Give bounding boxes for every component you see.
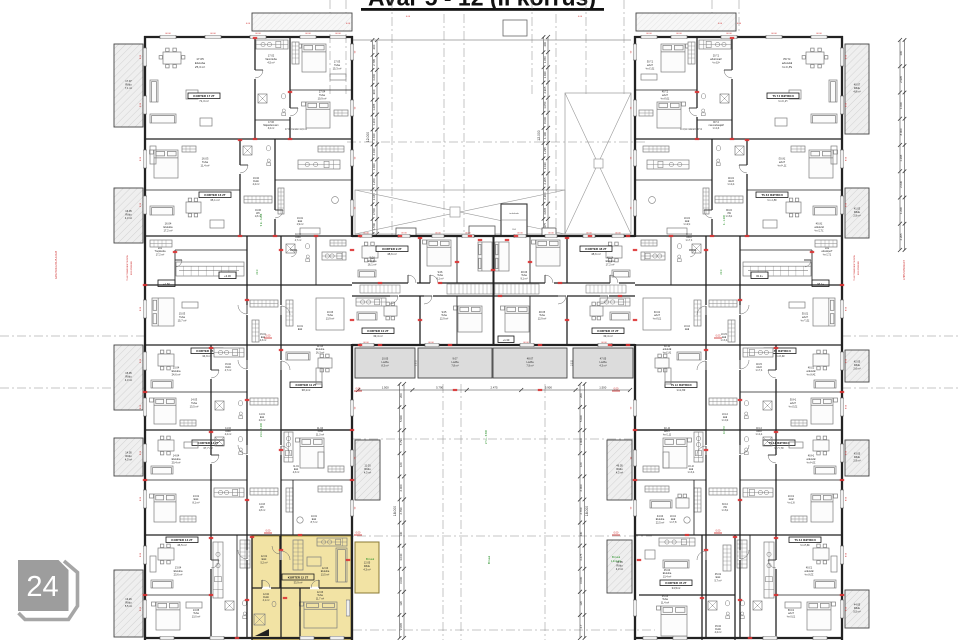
svg-text:12,9 m²: 12,9 m² [538, 317, 547, 320]
svg-text:10.01: 10.01 [683, 326, 689, 328]
svg-text:3.200: 3.200 [372, 73, 376, 80]
svg-text:11,3 m²: 11,3 m² [316, 433, 324, 436]
svg-text:24: 24 [26, 571, 58, 603]
svg-text:14.01: 14.01 [259, 414, 265, 416]
svg-text:9,1 m²: 9,1 m² [520, 277, 527, 280]
svg-text:KORTER 45 2T: KORTER 45 2T [665, 581, 686, 585]
svg-text:8,7 m²: 8,7 m² [311, 521, 318, 524]
svg-text:17,2 m²: 17,2 m² [163, 229, 172, 233]
svg-text:15.01: 15.01 [720, 334, 726, 336]
svg-text:8,3 m²: 8,3 m² [381, 363, 388, 367]
svg-text:13,9 m²: 13,9 m² [653, 317, 662, 320]
svg-text:00 00: 00 00 [601, 342, 607, 344]
svg-text:3.030: 3.030 [399, 553, 403, 560]
svg-text:1.295: 1.295 [543, 147, 547, 154]
svg-text:6.000: 6.000 [579, 484, 583, 491]
svg-text:KORTER 11 2T: KORTER 11 2T [295, 383, 316, 387]
svg-text:00 00: 00 00 [816, 33, 822, 35]
svg-text:46,5 m²: 46,5 m² [177, 543, 187, 547]
svg-text:16.06: 16.06 [725, 210, 731, 212]
svg-text:KORTER 17 2T: KORTER 17 2T [193, 94, 214, 98]
svg-text:1,8 m²: 1,8 m² [722, 509, 729, 512]
svg-text:11.01: 11.01 [687, 466, 693, 468]
svg-text:13,9 m²: 13,9 m² [326, 317, 335, 320]
svg-text:66 tuuk: 66 tuuk [488, 555, 491, 564]
svg-text:00 00: 00 00 [363, 233, 369, 235]
svg-text:13,0 m²: 13,0 m² [787, 615, 796, 618]
svg-text:2.030: 2.030 [372, 148, 376, 155]
svg-text:2,0 m²: 2,0 m² [722, 419, 729, 422]
svg-text:1.285: 1.285 [372, 103, 376, 110]
svg-text:11,3 m²: 11,3 m² [663, 433, 671, 436]
svg-text:0.00: 0.00 [356, 532, 361, 535]
svg-text:130: 130 [399, 531, 403, 536]
svg-text:4,1 m²: 4,1 m² [263, 599, 270, 602]
svg-text:13,5 m²: 13,5 m² [321, 573, 330, 576]
svg-text:Dušš: Dušš [225, 367, 231, 369]
svg-text:8.000: 8.000 [899, 128, 903, 135]
svg-text:10,9 m²: 10,9 m² [318, 96, 327, 100]
svg-text:4,5 m²: 4,5 m² [267, 60, 274, 64]
svg-text:13,0 m²: 13,0 m² [192, 615, 201, 618]
svg-text:17,2 m²: 17,2 m² [814, 229, 823, 233]
svg-text:Dušš: Dušš [756, 367, 762, 369]
svg-text:130: 130 [579, 531, 583, 536]
svg-text:20,4 m²: 20,4 m² [806, 460, 815, 464]
svg-text:4,2 m²: 4,2 m² [253, 183, 260, 186]
svg-text:2.630: 2.630 [899, 180, 903, 187]
svg-text:4,4 m²: 4,4 m² [225, 433, 232, 436]
svg-text:00 00: 00 00 [363, 342, 369, 344]
svg-text:Majandusruum: Majandusruum [708, 124, 723, 127]
svg-text:0.00: 0.00 [266, 335, 271, 338]
svg-text:+3.30: +3.30 [224, 274, 231, 278]
svg-text:Tuba: Tuba [202, 160, 209, 164]
svg-text:4,7 m²: 4,7 m² [225, 369, 232, 372]
svg-text:5,5 m²: 5,5 m² [125, 604, 132, 608]
svg-text:+3.30: +3.30 [756, 274, 763, 278]
svg-text:2.905: 2.905 [543, 86, 547, 93]
svg-text:1,8 m²: 1,8 m² [726, 215, 733, 218]
svg-text:Majandusruum: Majandusruum [263, 124, 278, 127]
svg-text:2.205: 2.205 [543, 177, 547, 184]
svg-text:2.205: 2.205 [899, 233, 903, 240]
svg-text:200: 200 [579, 393, 583, 398]
svg-text:16,3 m²: 16,3 m² [663, 351, 672, 354]
svg-text:KORTER 16 2T: KORTER 16 2T [761, 193, 782, 197]
svg-text:.300: .300 [372, 44, 376, 50]
svg-text:WC: WC [723, 507, 727, 509]
svg-text:13.03: 13.03 [721, 504, 727, 506]
svg-text:15,7 m²: 15,7 m² [800, 318, 809, 322]
svg-text:8,1 m²: 8,1 m² [787, 501, 794, 504]
svg-text:1.500: 1.500 [382, 385, 389, 389]
svg-text:KORTER 14 2T: KORTER 14 2T [197, 441, 218, 445]
svg-text:10,9 m²: 10,9 m² [660, 96, 669, 100]
svg-text:1.650: 1.650 [543, 56, 547, 63]
svg-text:5.790: 5.790 [399, 438, 403, 445]
svg-text:22 in: 22 in [256, 269, 259, 275]
svg-text:KORTER 10 2T: KORTER 10 2T [367, 329, 388, 333]
svg-text:1,2x1,2m: 1,2x1,2m [611, 560, 621, 563]
svg-text:25,3 m²: 25,3 m² [782, 65, 792, 69]
svg-text:1.200: 1.200 [372, 178, 376, 185]
svg-text:0.00: 0.00 [614, 532, 619, 535]
svg-text:3,2 m²: 3,2 m² [713, 127, 720, 130]
svg-text:13,5 m²: 13,5 m² [788, 404, 797, 408]
svg-text:18.000: 18.000 [393, 506, 397, 516]
svg-text:66 tuuk: 66 tuuk [612, 556, 621, 559]
svg-text:11,7 m²: 11,7 m² [316, 597, 324, 600]
svg-text:KASUTUSLUBA PUUDUB: KASUTUSLUBA PUUDUB [55, 251, 58, 280]
svg-text:4,8 m²: 4,8 m² [853, 89, 860, 93]
svg-text:3,2 m²: 3,2 m² [268, 127, 275, 130]
svg-text:00 00: 00 00 [210, 33, 216, 35]
svg-text:KORTER 13 2T: KORTER 13 2T [794, 538, 815, 542]
svg-text:13,4 m²: 13,4 m² [663, 575, 672, 578]
svg-text:11,4 m²: 11,4 m² [777, 164, 786, 168]
svg-text:21 in - 5.206: 21 in - 5.206 [260, 422, 263, 437]
svg-text:00 00: 00 00 [676, 33, 682, 35]
svg-text:00 00: 00 00 [615, 233, 621, 235]
svg-text:48,6 m²: 48,6 m² [387, 252, 397, 256]
svg-text:Dušš: Dušš [295, 237, 301, 239]
svg-text:200: 200 [399, 393, 403, 398]
svg-text:4,3 m²: 4,3 m² [599, 363, 606, 367]
svg-text:48,6 m²: 48,6 m² [591, 252, 601, 256]
svg-text:7,1 m²: 7,1 m² [125, 86, 132, 90]
svg-text:4,2 m²: 4,2 m² [727, 183, 734, 186]
svg-text:Dušš: Dušš [686, 237, 692, 239]
svg-text:Dušš: Dušš [756, 431, 762, 433]
svg-text:0.00: 0.00 [266, 530, 271, 533]
svg-text:0.00: 0.00 [356, 388, 361, 391]
svg-text:4,3 m²: 4,3 m² [293, 471, 300, 474]
svg-text:5,7 m²: 5,7 m² [714, 579, 721, 582]
svg-text:5,2 m²: 5,2 m² [260, 561, 267, 564]
svg-text:4,3 m²: 4,3 m² [260, 339, 267, 342]
svg-text:00 00: 00 00 [401, 233, 407, 235]
svg-text:16.03: 16.03 [778, 156, 785, 160]
svg-text:1.050: 1.050 [543, 101, 547, 108]
svg-text:14.01: 14.01 [721, 414, 727, 416]
svg-text:6.000: 6.000 [399, 484, 403, 491]
svg-text:TULETOKKESEKTSIOON: TULETOKKESEKTSIOON [127, 255, 129, 281]
svg-text:4,3 m²: 4,3 m² [364, 470, 371, 474]
svg-text:Dušš: Dušš [225, 431, 231, 433]
svg-text:0.00: 0.00 [716, 530, 721, 533]
svg-text:120: 120 [399, 462, 403, 467]
svg-text:5.900: 5.900 [399, 415, 403, 422]
svg-text:1,9 m²: 1,9 m² [683, 223, 690, 226]
svg-text:8,1 m²: 8,1 m² [192, 501, 199, 504]
svg-text:13,5 m²: 13,5 m² [190, 404, 199, 408]
svg-text:7,9 m²: 7,9 m² [526, 363, 533, 367]
svg-text:4,3 m²: 4,3 m² [616, 470, 623, 474]
svg-text:EI60 PIIRDED: EI60 PIIRDED [131, 261, 133, 275]
svg-text:tuulekoda: tuulekoda [509, 212, 519, 215]
svg-text:12,9 m²: 12,9 m² [440, 317, 449, 320]
svg-text:1.500: 1.500 [599, 385, 606, 389]
svg-text:2.630: 2.630 [543, 162, 547, 169]
svg-text:2,0 m²: 2,0 m² [259, 419, 266, 422]
svg-text:5,5 m²: 5,5 m² [853, 609, 860, 613]
svg-text:KORTER 14 2T: KORTER 14 2T [768, 441, 789, 445]
svg-text:120: 120 [579, 462, 583, 467]
svg-text:Elutuba: Elutuba [163, 225, 173, 229]
svg-text:27 in - 6.506: 27 in - 6.506 [485, 429, 488, 444]
svg-text:11,4 m²: 11,4 m² [201, 164, 210, 168]
svg-text:00 00: 00 00 [726, 33, 732, 35]
svg-text:8,7 m²: 8,7 m² [669, 521, 676, 524]
svg-text:4,4 m²: 4,4 m² [756, 433, 763, 436]
svg-text:KORTER 48 2T: KORTER 48 2T [585, 247, 606, 251]
svg-text:18.000: 18.000 [585, 506, 589, 516]
svg-text:5.900: 5.900 [579, 415, 583, 422]
svg-text:15,3 m²: 15,3 m² [645, 66, 654, 70]
svg-text:KORTER 9 2T: KORTER 9 2T [382, 247, 402, 251]
svg-text:15.02: 15.02 [755, 364, 761, 366]
svg-text:KORTER 17 2T: KORTER 17 2T [772, 94, 793, 98]
svg-text:17,2 m²: 17,2 m² [823, 253, 832, 256]
svg-text:+1.30: +1.30 [503, 338, 510, 342]
svg-text:4,3 m²: 4,3 m² [721, 339, 728, 342]
svg-text:16.06: 16.06 [255, 210, 261, 212]
svg-text:1.200: 1.200 [899, 207, 903, 214]
svg-text:1.500: 1.500 [372, 223, 376, 230]
svg-text:120: 120 [579, 601, 583, 606]
svg-text:2.700: 2.700 [579, 507, 583, 514]
svg-text:17.06: 17.06 [712, 122, 718, 124]
svg-text:1,9 m²: 1,9 m² [297, 223, 304, 226]
svg-text:2,9 m²: 2,9 m² [853, 213, 860, 217]
svg-text:8.000: 8.000 [543, 116, 547, 123]
svg-text:4,3 m²: 4,3 m² [616, 567, 623, 571]
svg-text:39,4 m²: 39,4 m² [603, 334, 613, 338]
svg-text:66 tuuk: 66 tuuk [366, 558, 375, 561]
svg-text:4,3 m²: 4,3 m² [125, 216, 132, 220]
svg-text:300: 300 [899, 50, 903, 55]
svg-text:22 in: 22 in [720, 269, 723, 275]
svg-text:00 00: 00 00 [335, 33, 341, 35]
svg-text:3.500: 3.500 [372, 208, 376, 215]
svg-text:15,7 m²: 15,7 m² [178, 318, 187, 322]
svg-text:00 00: 00 00 [771, 33, 777, 35]
svg-text:22,5 m²: 22,5 m² [656, 521, 665, 524]
svg-text:EHITUSPROJEKT: EHITUSPROJEKT [903, 260, 906, 280]
svg-text:12.000: 12.000 [537, 130, 541, 140]
svg-text:WC: WC [727, 213, 731, 215]
svg-text:3.865: 3.865 [543, 207, 547, 214]
svg-text:0.00: 0.00 [614, 388, 619, 391]
svg-text:4,3 m²: 4,3 m² [125, 457, 132, 461]
svg-text:Tuba: Tuba [778, 160, 785, 164]
svg-text:35,1 m²: 35,1 m² [210, 198, 220, 202]
svg-text:5.900: 5.900 [545, 385, 552, 389]
svg-text:TULETOKKESEKTSIOON: TULETOKKESEKTSIOON [854, 255, 856, 281]
svg-text:2.845: 2.845 [399, 623, 403, 630]
svg-text:2.300: 2.300 [543, 192, 547, 199]
svg-text:17.01 Koridor 11,9 m²: 17.01 Koridor 11,9 m² [680, 128, 702, 131]
svg-text:00 00: 00 00 [165, 33, 171, 35]
svg-text:2.790: 2.790 [399, 507, 403, 514]
svg-text:2,9 m²: 2,9 m² [853, 458, 860, 462]
svg-text:00 00: 00 00 [548, 233, 554, 235]
svg-text:15,3 m²: 15,3 m² [333, 66, 342, 70]
svg-text:16,3 m²: 16,3 m² [316, 351, 325, 354]
svg-text:2.915: 2.915 [416, 359, 418, 365]
svg-text:16.03: 16.03 [202, 156, 209, 160]
svg-text:23,6 m²: 23,6 m² [174, 572, 183, 576]
svg-text:1.100: 1.100 [543, 132, 547, 139]
svg-text:.900: .900 [372, 89, 376, 95]
svg-text:2.630: 2.630 [372, 133, 376, 140]
svg-text:00 00: 00 00 [428, 342, 434, 344]
svg-text:24,6 m²: 24,6 m² [172, 372, 181, 376]
svg-text:34,5m²: 34,5m² [672, 586, 681, 590]
svg-text:71,3 m²: 71,3 m² [778, 99, 788, 103]
svg-text:33,9 m²: 33,9 m² [294, 581, 303, 585]
svg-text:EI60 PIIRDED: EI60 PIIRDED [858, 261, 860, 275]
svg-text:KORTER 16 2T: KORTER 16 2T [204, 193, 225, 197]
svg-text:10.01: 10.01 [297, 326, 303, 328]
svg-text:00 00: 00 00 [305, 33, 311, 35]
svg-text:1.930: 1.930 [543, 71, 547, 78]
svg-text:25,3 m²: 25,3 m² [195, 65, 205, 69]
svg-text:6.000: 6.000 [579, 576, 583, 583]
svg-text:38,1m²: 38,1m² [302, 388, 311, 392]
svg-text:24,6 m²: 24,6 m² [806, 372, 815, 376]
svg-text:2.7: 2.7 [579, 624, 583, 628]
svg-text:17.01 Koridor 11,9 m²: 17.01 Koridor 11,9 m² [285, 128, 307, 131]
svg-text:10.372: 10.372 [723, 426, 726, 434]
svg-text:9 in - 3.206: 9 in - 3.206 [260, 213, 263, 226]
svg-text:1.295: 1.295 [899, 154, 903, 161]
svg-text:00 00: 00 00 [465, 233, 471, 235]
svg-text:13.03: 13.03 [259, 504, 265, 506]
svg-text:2.915: 2.915 [572, 359, 574, 365]
svg-text:KORTER 13 2T: KORTER 13 2T [171, 538, 192, 542]
svg-text:23,6 m²: 23,6 m² [804, 572, 813, 576]
svg-text:7,8 m²: 7,8 m² [451, 363, 458, 367]
svg-text:00 00: 00 00 [435, 233, 441, 235]
svg-text:17,2 m²: 17,2 m² [156, 253, 165, 256]
svg-text:4,7 m²: 4,7 m² [295, 239, 302, 242]
svg-text:11.01: 11.01 [293, 466, 299, 468]
svg-text:4,7 m²: 4,7 m² [686, 239, 693, 242]
svg-text:KORTER 12 2T: KORTER 12 2T [288, 576, 309, 580]
svg-text:4,3 m²: 4,3 m² [688, 471, 695, 474]
svg-text:15.02: 15.02 [225, 364, 231, 366]
svg-text:KORTER 47 2T: KORTER 47 2T [597, 329, 618, 333]
svg-text:2.795: 2.795 [372, 58, 376, 65]
svg-text:Elutuba: Elutuba [814, 225, 824, 229]
svg-text:1,8 m²: 1,8 m² [259, 509, 266, 512]
svg-text:2,6 m²: 2,6 m² [853, 366, 860, 370]
svg-text:1.900: 1.900 [579, 438, 583, 445]
svg-text:1.930: 1.930 [372, 163, 376, 170]
svg-text:4,2 m²: 4,2 m² [715, 631, 722, 634]
svg-text:16,1 m²: 16,1 m² [368, 262, 377, 266]
svg-text:17.06: 17.06 [268, 122, 274, 124]
svg-text:120: 120 [399, 601, 403, 606]
svg-text:4,5 m²: 4,5 m² [712, 60, 719, 64]
svg-text:12.000: 12.000 [366, 132, 370, 142]
svg-text:00 00: 00 00 [255, 33, 261, 35]
svg-text:00 00: 00 00 [523, 342, 529, 344]
svg-text:71,3 m²: 71,3 m² [199, 99, 209, 103]
svg-text:39,4 m²: 39,4 m² [373, 334, 383, 338]
svg-text:b - 1.206: b - 1.206 [723, 214, 726, 224]
svg-text:2.475: 2.475 [491, 385, 498, 389]
svg-text:.300: .300 [543, 41, 547, 47]
svg-text:4,7 m²: 4,7 m² [756, 369, 763, 372]
svg-text:17,2 m²: 17,2 m² [606, 262, 615, 266]
svg-text:46,5 m²: 46,5 m² [800, 543, 810, 547]
svg-text:2.905: 2.905 [899, 75, 903, 82]
svg-text:11,4 m²: 11,4 m² [661, 601, 669, 604]
svg-text:38,1m²: 38,1m² [677, 388, 686, 392]
svg-text:6.000: 6.000 [399, 576, 403, 583]
svg-text:1.200: 1.200 [372, 118, 376, 125]
svg-text:1.600: 1.600 [899, 102, 903, 109]
svg-text:4,3 m²: 4,3 m² [363, 567, 370, 571]
svg-text:00 00: 00 00 [586, 233, 592, 235]
svg-text:00 00: 00 00 [646, 33, 652, 35]
svg-text:WC: WC [260, 507, 264, 509]
svg-text:20,4 m²: 20,4 m² [172, 460, 181, 464]
svg-text:16.04: 16.04 [815, 221, 822, 225]
svg-text:0.00: 0.00 [716, 335, 721, 338]
svg-text:5.790: 5.790 [436, 385, 443, 389]
svg-text:16.04: 16.04 [165, 221, 172, 225]
svg-text:35,1 m²: 35,1 m² [767, 198, 777, 202]
svg-text:00 00: 00 00 [517, 233, 523, 235]
svg-text:KORTER 11 2T: KORTER 11 2T [670, 383, 691, 387]
svg-text:3.275: 3.275 [579, 553, 583, 560]
svg-text:4,3 m²: 4,3 m² [125, 378, 132, 382]
